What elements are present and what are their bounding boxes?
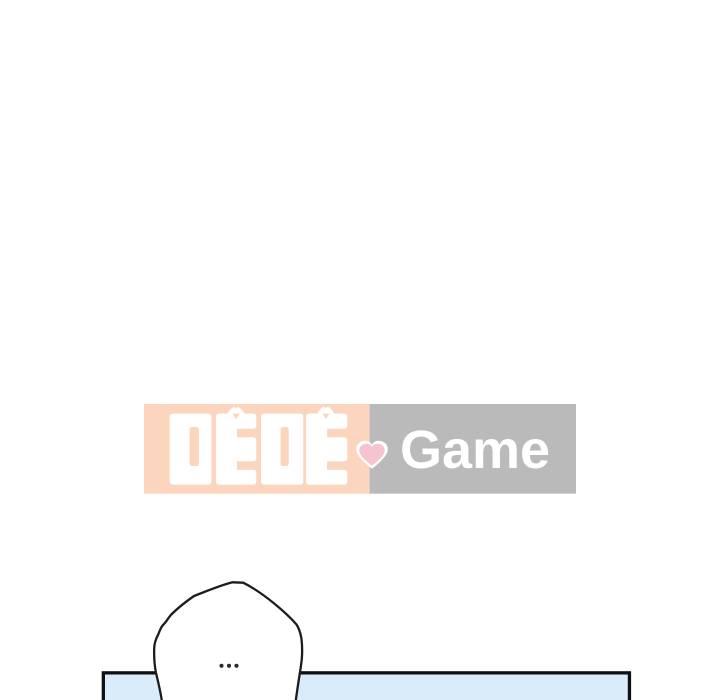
svg-text:Game: Game [400,420,550,480]
